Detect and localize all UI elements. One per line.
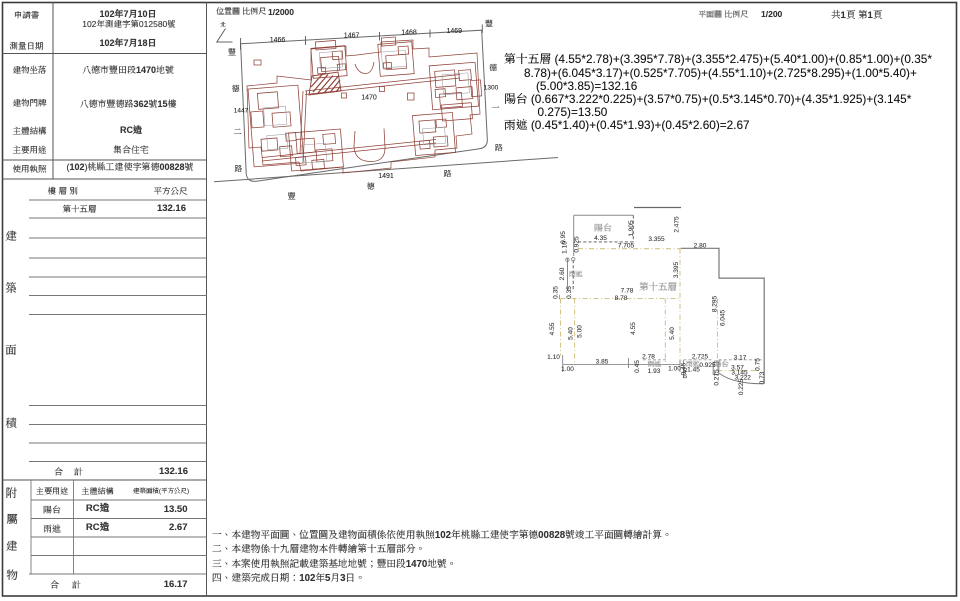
svg-text:1300: 1300 xyxy=(484,85,499,92)
svg-text:一: 一 xyxy=(492,103,500,114)
svg-text:0.45: 0.45 xyxy=(634,360,641,373)
svg-text:5.40: 5.40 xyxy=(669,327,676,340)
svg-text:1.45: 1.45 xyxy=(687,367,700,374)
svg-text:0.925: 0.925 xyxy=(699,362,716,369)
svg-text:1.905: 1.905 xyxy=(628,220,635,237)
svg-text:1.10: 1.10 xyxy=(561,241,568,254)
svg-text:3.17: 3.17 xyxy=(734,355,747,362)
svg-text:1466: 1466 xyxy=(270,37,286,44)
svg-text:德: 德 xyxy=(232,84,240,95)
svg-text:2.60: 2.60 xyxy=(559,267,566,280)
svg-text:2.725: 2.725 xyxy=(692,354,709,361)
svg-text:0.73: 0.73 xyxy=(759,371,766,384)
svg-text:0.275: 0.275 xyxy=(713,369,720,386)
svg-text:4.35: 4.35 xyxy=(594,235,607,242)
svg-text:路: 路 xyxy=(443,169,452,180)
svg-text:雨遮: 雨遮 xyxy=(569,270,584,280)
svg-text:6.045: 6.045 xyxy=(720,309,727,326)
svg-text:1447: 1447 xyxy=(234,108,249,115)
svg-text:8.295: 8.295 xyxy=(712,295,719,312)
svg-text:豐: 豐 xyxy=(288,191,296,202)
svg-text:7.78: 7.78 xyxy=(621,288,634,295)
svg-text:陽台: 陽台 xyxy=(594,221,612,234)
svg-text:二: 二 xyxy=(234,127,242,138)
svg-text:2.475: 2.475 xyxy=(674,216,681,233)
svg-text:3.355: 3.355 xyxy=(648,236,665,243)
svg-text:第十五層: 第十五層 xyxy=(639,279,677,293)
svg-text:0.40: 0.40 xyxy=(683,368,689,379)
svg-text:路: 路 xyxy=(234,164,243,175)
svg-text:4.55: 4.55 xyxy=(630,322,637,335)
svg-text:路: 路 xyxy=(494,143,503,154)
svg-text:德: 德 xyxy=(367,181,375,192)
svg-text:8.78: 8.78 xyxy=(615,295,628,302)
svg-text:0.225: 0.225 xyxy=(738,378,745,395)
svg-text:1469: 1469 xyxy=(447,28,463,35)
svg-text:陽台: 陽台 xyxy=(714,359,729,370)
svg-text:0.75: 0.75 xyxy=(754,358,761,371)
svg-text:1467: 1467 xyxy=(344,33,360,40)
svg-text:1.00: 1.00 xyxy=(561,366,574,373)
svg-text:5.40: 5.40 xyxy=(568,327,575,340)
svg-text:3.395: 3.395 xyxy=(673,261,680,278)
svg-text:1.93: 1.93 xyxy=(648,368,661,375)
svg-text:2.80: 2.80 xyxy=(694,243,707,250)
svg-text:4.55: 4.55 xyxy=(549,322,556,335)
svg-text:豐: 豐 xyxy=(228,47,236,58)
svg-text:3.85: 3.85 xyxy=(596,359,609,366)
svg-text:7.705: 7.705 xyxy=(618,243,635,250)
svg-text:1468: 1468 xyxy=(401,30,417,37)
svg-text:1.00: 1.00 xyxy=(668,366,681,373)
svg-text:2.78: 2.78 xyxy=(642,354,655,361)
svg-text:0.925: 0.925 xyxy=(574,236,581,253)
svg-text:北: 北 xyxy=(219,21,226,29)
svg-text:5.00: 5.00 xyxy=(577,325,584,338)
svg-text:1491: 1491 xyxy=(378,173,394,180)
svg-text:1.10: 1.10 xyxy=(547,354,560,361)
svg-text:0.35: 0.35 xyxy=(553,286,560,299)
svg-text:1470: 1470 xyxy=(361,95,377,102)
svg-text:豐: 豐 xyxy=(485,19,493,30)
svg-text:德: 德 xyxy=(489,63,497,74)
svg-text:0.35: 0.35 xyxy=(566,286,573,299)
